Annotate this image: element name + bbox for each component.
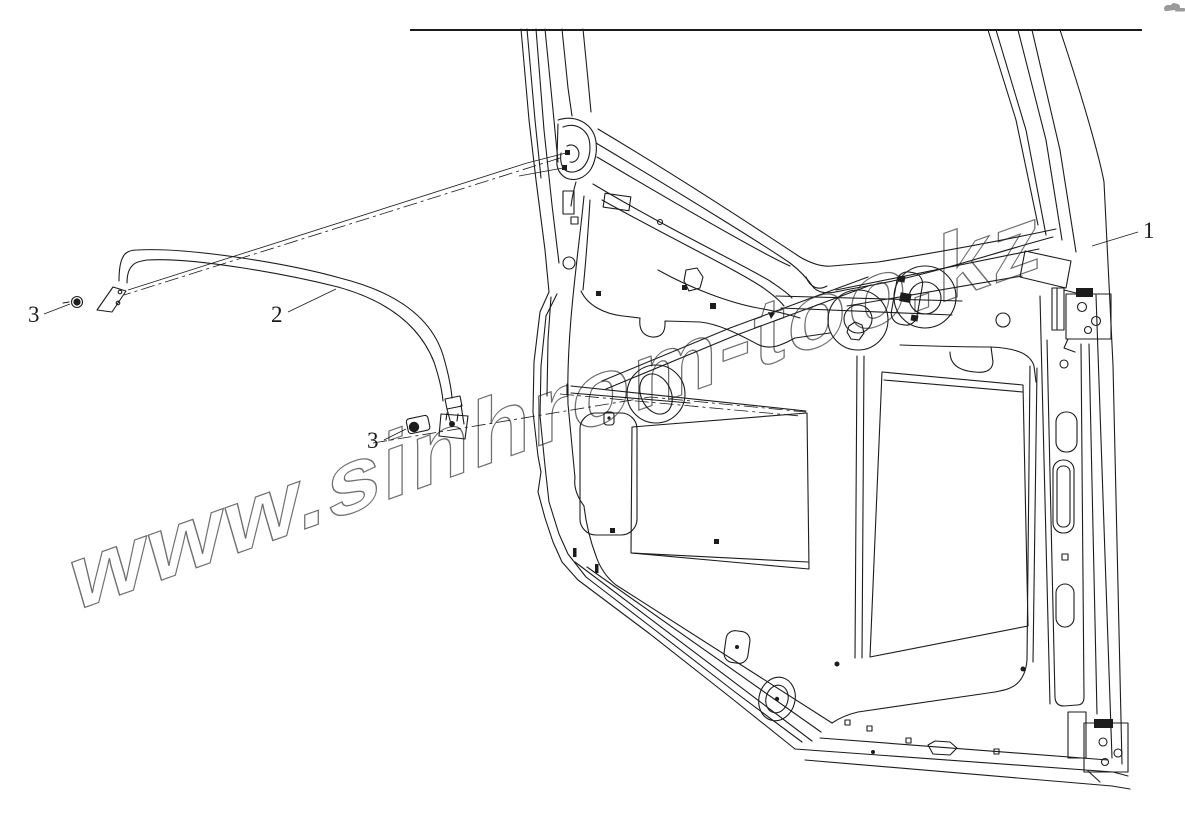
svg-text:3: 3 — [367, 428, 379, 453]
svg-text:2: 2 — [271, 302, 283, 327]
svg-text:1: 1 — [1143, 218, 1155, 243]
svg-text:3: 3 — [28, 302, 40, 327]
